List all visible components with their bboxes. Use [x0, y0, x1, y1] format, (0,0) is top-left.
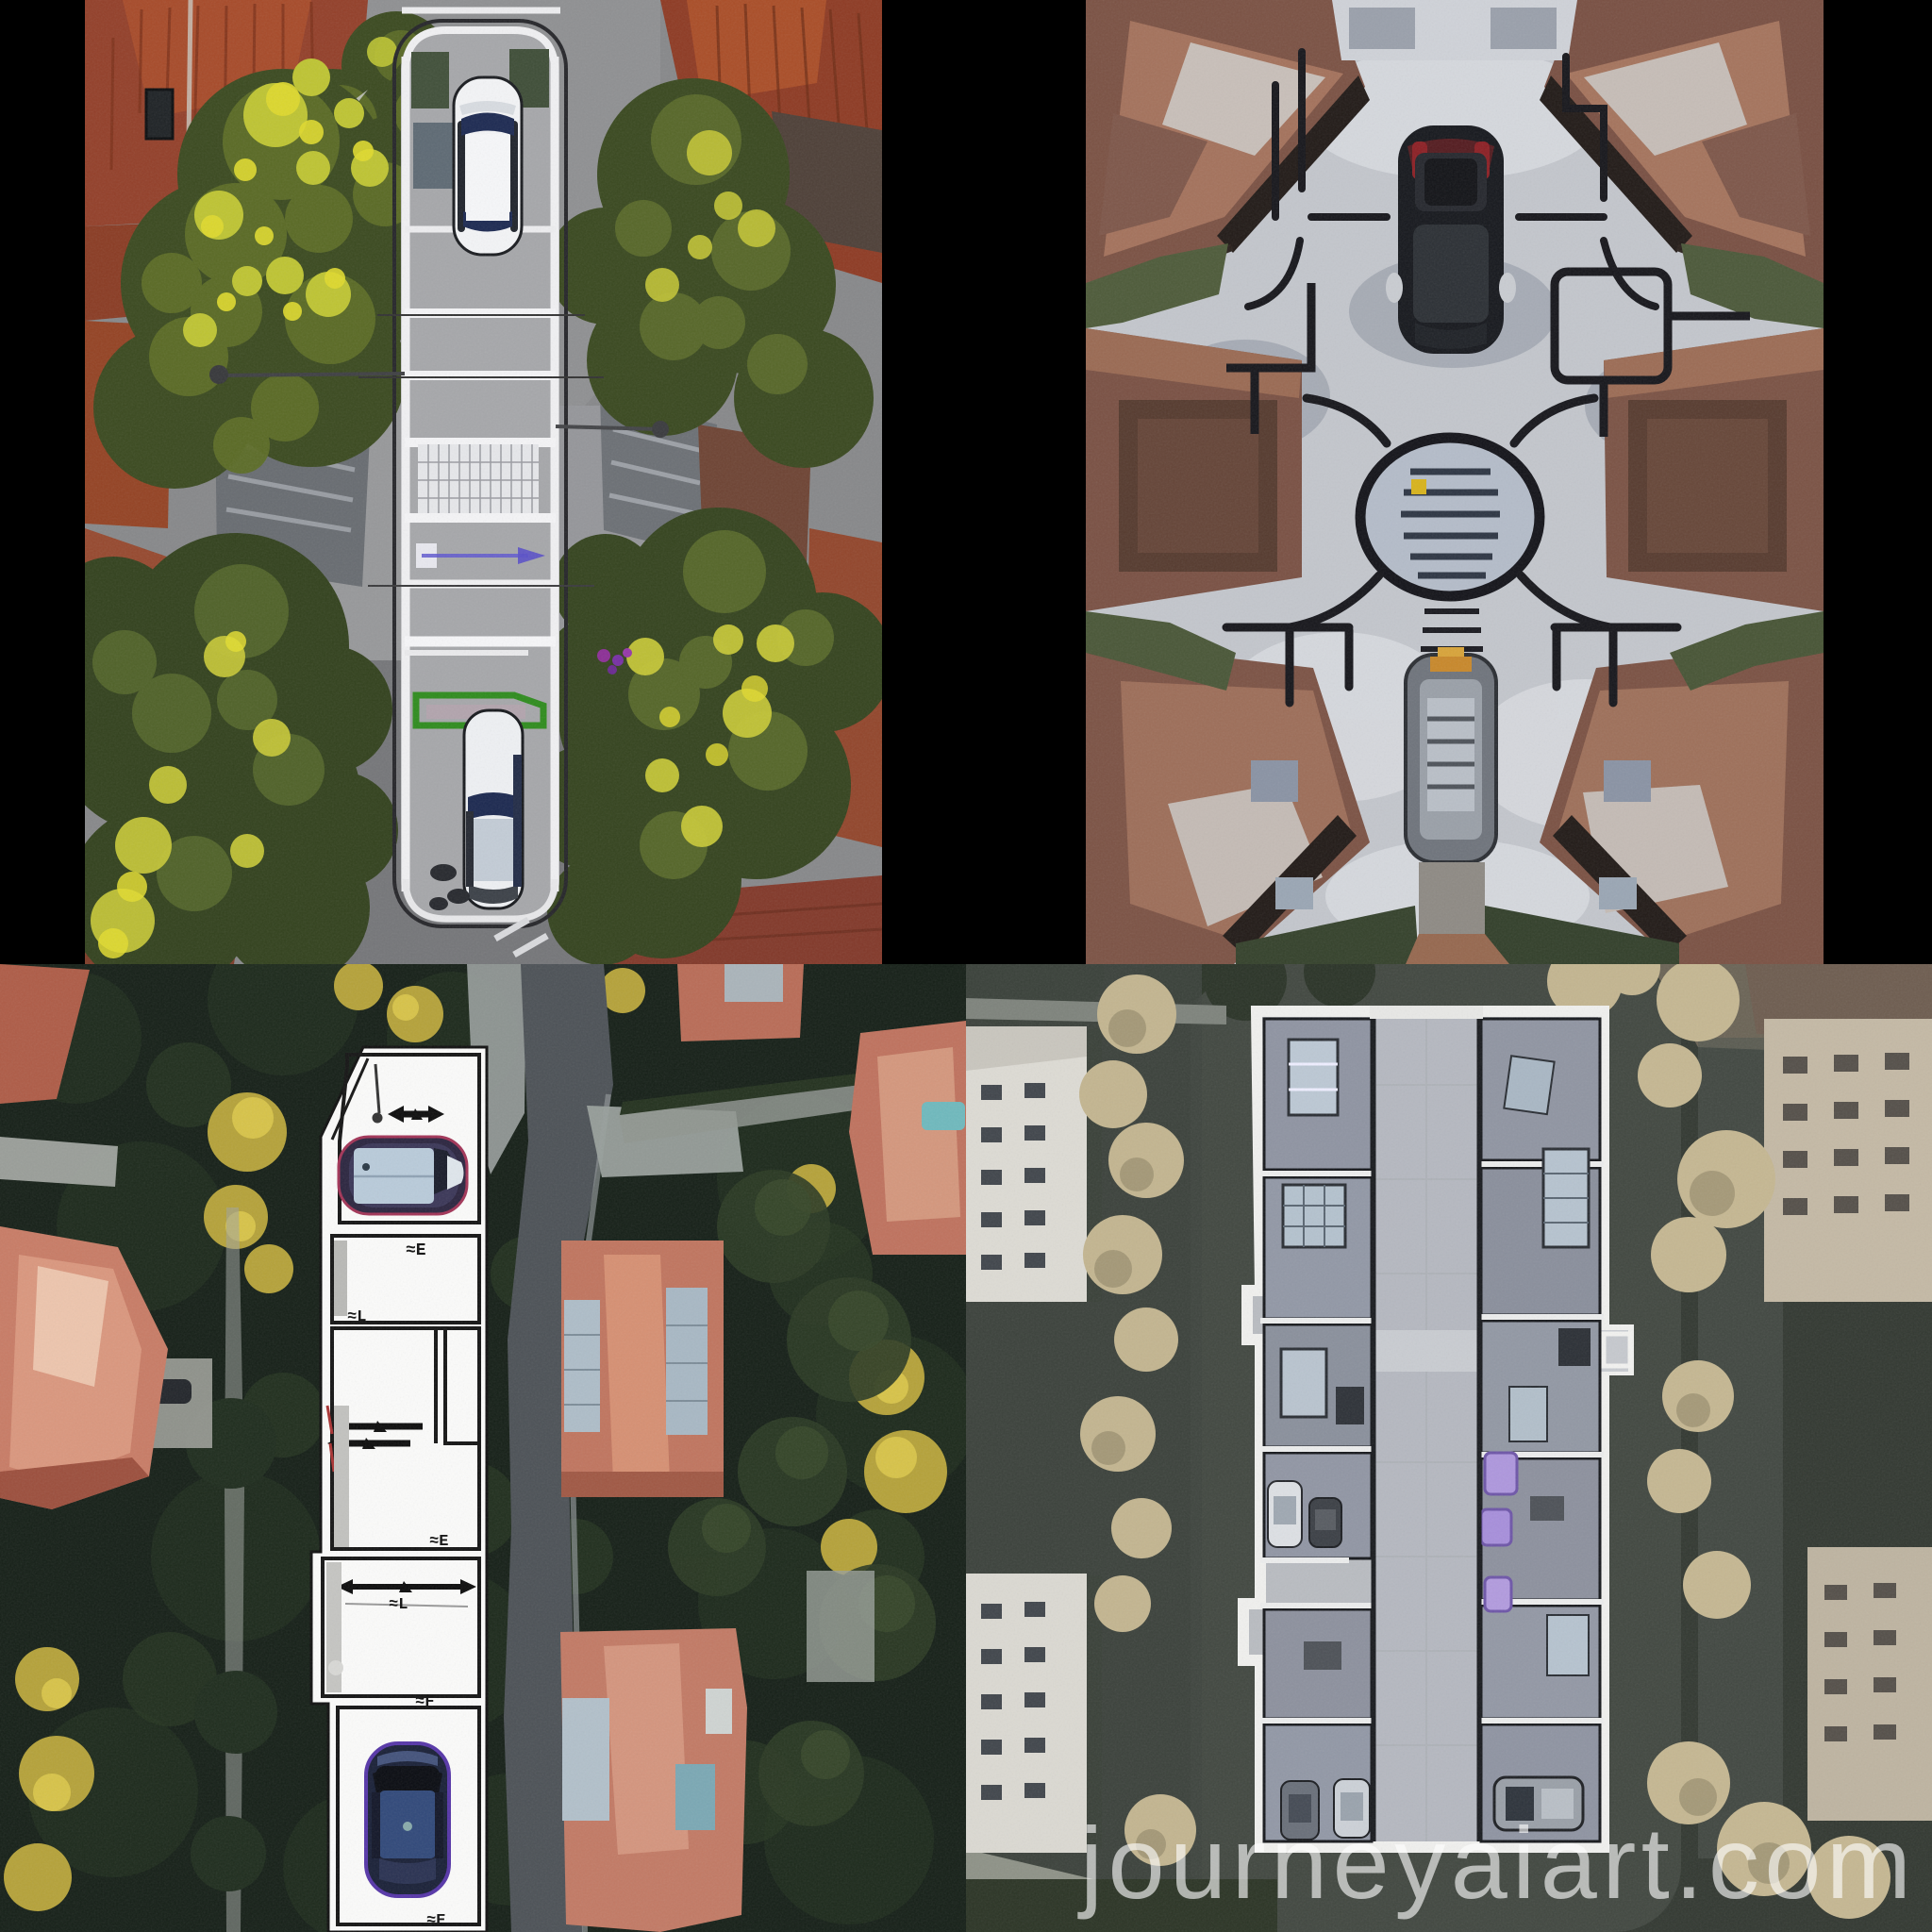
svg-text:journeyaiart.com: journeyaiart.com: [1077, 1806, 1916, 1920]
